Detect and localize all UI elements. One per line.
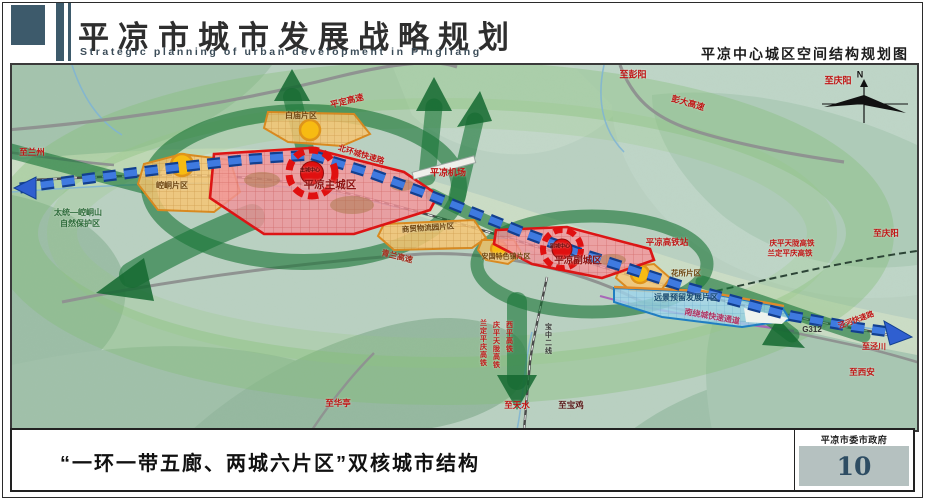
page-number: 10: [837, 452, 872, 481]
header: 平凉市城市发展战略规划 Strategic planning of urban …: [0, 0, 925, 63]
logistics-district-zone: [378, 220, 486, 250]
title-divider-bar-thin: [68, 3, 71, 61]
map-subtitle: 平凉中心城区空间结构规划图: [701, 44, 909, 64]
title-divider-bar: [56, 3, 64, 61]
authority-label: 平凉市委市政府: [795, 433, 913, 446]
planning-document-page: 平凉市城市发展战略规划 Strategic planning of urban …: [0, 0, 925, 500]
logo-square: [11, 5, 45, 45]
planning-map: [10, 63, 919, 432]
page-number-box: 10: [799, 446, 909, 486]
footer-right-cell: 平凉市委市政府 10: [794, 430, 913, 490]
map-canvas: [12, 65, 917, 430]
map-caption: “一环一带五廊、两城六片区”双核城市结构: [60, 447, 480, 476]
page-title-english: Strategic planning of urban development …: [80, 46, 482, 58]
footer: “一环一带五廊、两城六片区”双核城市结构 平凉市委市政府 10: [10, 428, 915, 492]
